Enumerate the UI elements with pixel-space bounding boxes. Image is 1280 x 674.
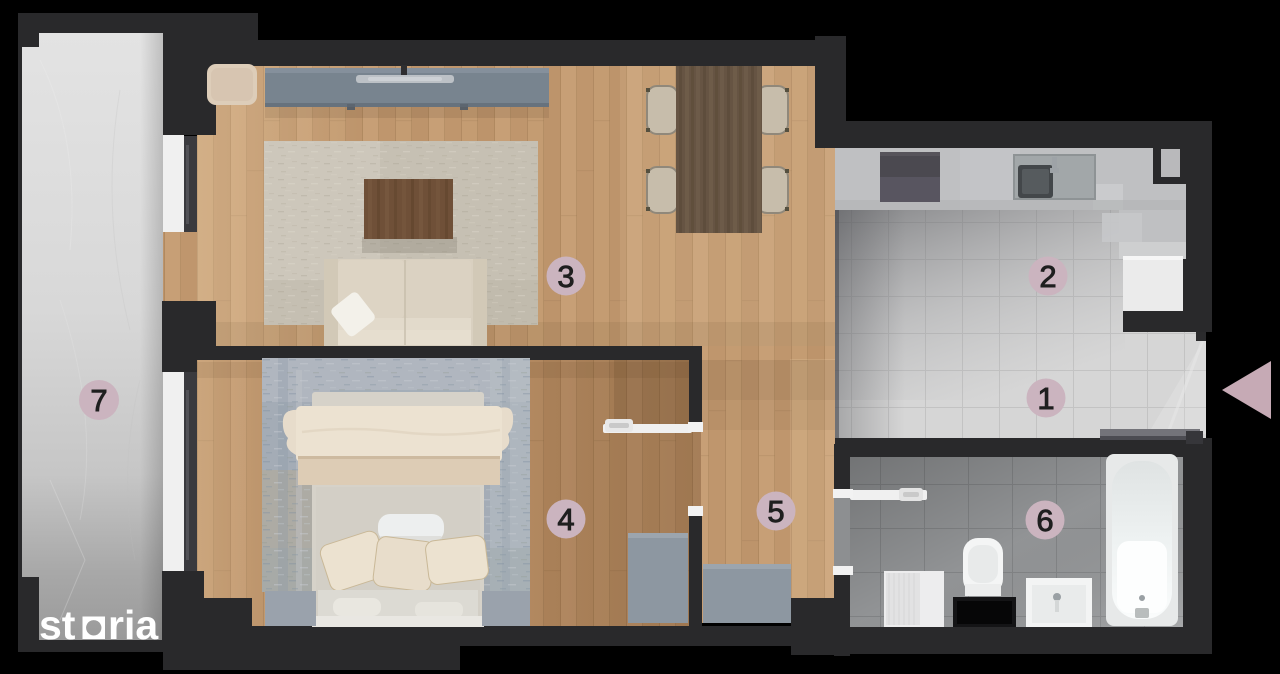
svg-text:3: 3	[557, 259, 574, 294]
svg-text:2: 2	[1039, 259, 1056, 294]
svg-text:st: st	[39, 602, 76, 648]
svg-text:7: 7	[90, 383, 107, 418]
svg-text:4: 4	[557, 502, 574, 537]
svg-text:6: 6	[1036, 503, 1053, 538]
svg-text:5: 5	[767, 494, 784, 529]
svg-text:ria: ria	[108, 602, 159, 648]
svg-text:1: 1	[1037, 381, 1054, 416]
